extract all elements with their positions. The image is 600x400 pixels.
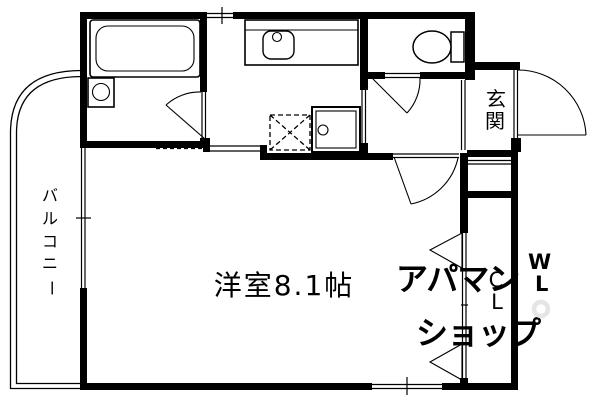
closet-bifold-doors	[430, 233, 468, 380]
main-room-doorway	[393, 154, 459, 158]
wall-kitchen-bottom	[260, 153, 393, 160]
balcony-outline-inner	[17, 77, 83, 384]
balcony-label-char3: コ	[42, 232, 58, 251]
main-room-door-swing	[394, 157, 458, 204]
watermark-line2: ショップ	[416, 314, 542, 352]
balcony-label-char5: ー	[42, 280, 61, 296]
wall-toilet-right	[465, 12, 475, 80]
washing-machine-space-icon	[312, 107, 360, 152]
doors	[166, 70, 586, 204]
closet-label-char2: L	[491, 290, 503, 314]
bathtub-icon	[90, 20, 200, 77]
watermark-mark-l: L	[535, 272, 548, 296]
balcony-label-char1: バ	[42, 186, 58, 205]
balcony	[11, 71, 83, 389]
wall-bottom-b	[442, 383, 518, 390]
genkan-step-edge	[462, 80, 466, 150]
wall-bottom-a	[80, 383, 372, 390]
wall-bath-kitchen-divider	[200, 12, 207, 92]
genkan-cabinet	[467, 161, 511, 165]
watermark: アパマン ショップ W L	[396, 250, 551, 352]
balcony-label-char4: ニ	[42, 254, 58, 273]
kitchen-washroom-opening	[362, 90, 366, 143]
wall-bathroom-left	[80, 12, 87, 148]
wall-left-lower	[80, 288, 87, 390]
toilet-doorway	[385, 74, 420, 78]
toilet-icon	[413, 31, 464, 63]
top-window	[207, 7, 233, 24]
main-room-label: 洋室8.1帖	[214, 269, 355, 302]
watermark-mark-w: W	[528, 250, 551, 274]
bathroom-doorway	[202, 92, 206, 138]
refrigerator-space-icon	[270, 115, 310, 150]
wall-right	[511, 138, 518, 390]
toilet-tank	[451, 32, 464, 62]
closet-label-char1: C	[489, 268, 504, 292]
wall-closet-top	[460, 191, 512, 198]
entrance-doorway	[514, 70, 518, 138]
wall-kitchen-right-stub	[360, 143, 368, 160]
genkan-label-char2: 関	[485, 109, 505, 133]
watermark-handakuten-icon	[534, 302, 548, 316]
balcony-sliding-window	[76, 148, 91, 288]
faucet-icon	[273, 33, 282, 42]
floor-plan: アパマン ショップ W L	[0, 0, 600, 400]
fixtures	[88, 20, 464, 152]
wall-top-left	[80, 12, 207, 19]
washing-machine-pan-icon	[88, 78, 114, 107]
kitchen-counter-icon	[245, 20, 358, 65]
balcony-outline-outer	[11, 71, 83, 389]
floor-plan-page: アパマン ショップ W L	[0, 0, 600, 400]
wall-closet-bottom-stub	[460, 378, 468, 384]
wall-genkan-top	[475, 62, 520, 70]
genkan-label-char1: 玄	[486, 87, 506, 111]
wall-genkan-bottom	[467, 150, 513, 157]
wall-top-mid	[233, 12, 475, 19]
wall-bathroom-bottom	[80, 141, 210, 148]
wall-bath-divider-stub	[200, 138, 207, 148]
entrance-door-swing	[518, 70, 586, 135]
balcony-label-char2: ル	[42, 209, 58, 228]
toilet-bowl	[413, 31, 451, 63]
bathroom-door-swing	[166, 92, 205, 139]
toilet-door-swing	[372, 78, 420, 113]
kitchen-sink-icon	[263, 31, 294, 59]
bottom-window	[372, 377, 442, 395]
